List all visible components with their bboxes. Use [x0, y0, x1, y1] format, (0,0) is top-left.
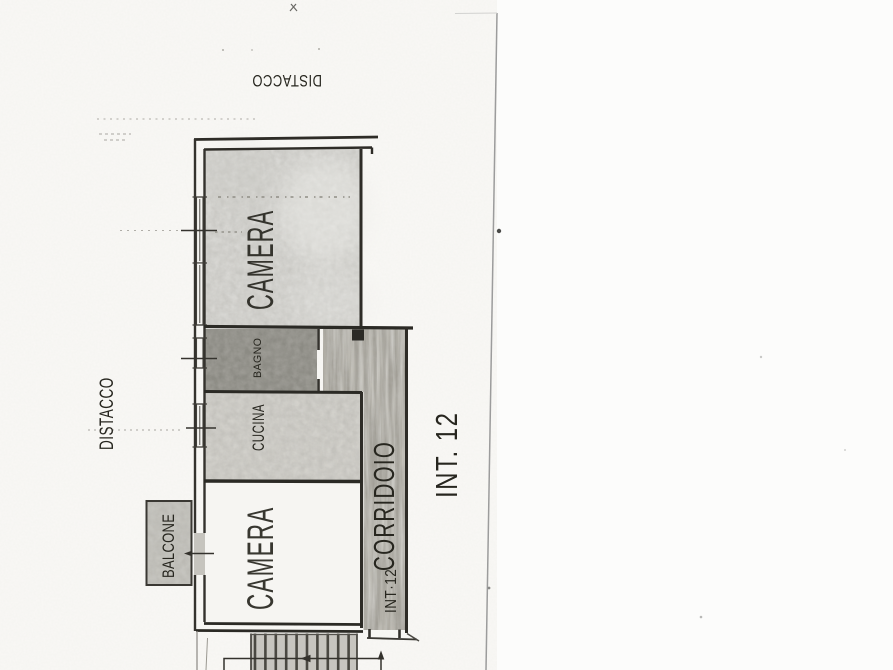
svg-text:CAMERA: CAMERA [240, 210, 281, 310]
svg-text:CORRIDOIO: CORRIDOIO [369, 441, 401, 571]
svg-text:BAGNO: BAGNO [252, 338, 264, 378]
svg-text:INT·12: INT·12 [383, 569, 400, 613]
svg-text:CAMERA: CAMERA [239, 507, 281, 610]
svg-text:INT. 12: INT. 12 [429, 412, 464, 498]
svg-text:DISTACCO: DISTACCO [252, 71, 322, 90]
svg-text:CUCINA: CUCINA [250, 404, 269, 451]
svg-text:BALCONE: BALCONE [161, 514, 179, 578]
svg-text:DISTACCO: DISTACCO [96, 377, 118, 450]
